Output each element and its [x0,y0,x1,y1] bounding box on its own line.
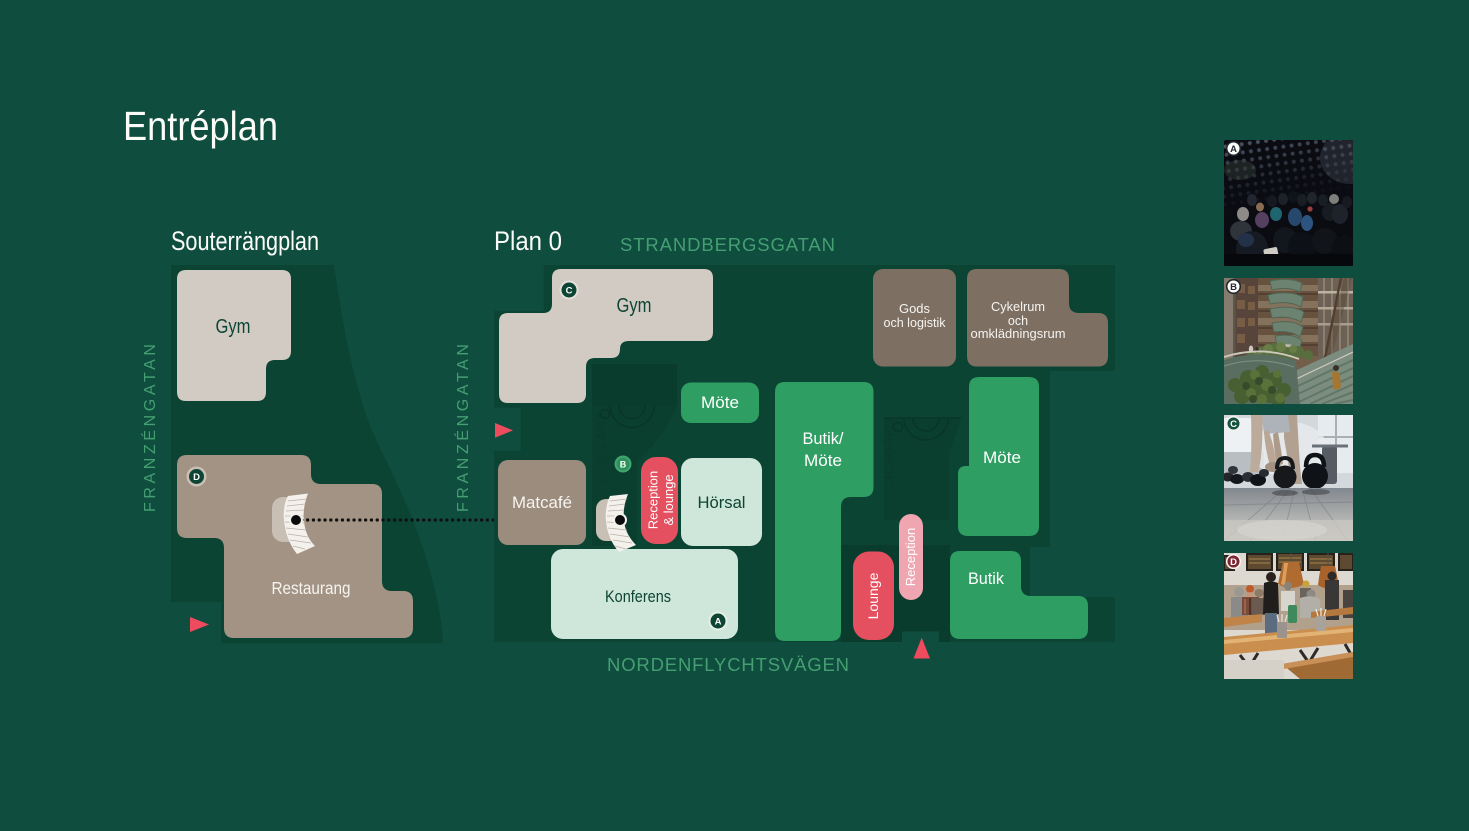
svg-text:Gym: Gym [216,316,251,338]
svg-text:B: B [620,460,627,470]
svg-text:Restaurang: Restaurang [272,578,351,598]
svg-text:och logistik: och logistik [884,316,947,330]
svg-text:D: D [1230,557,1237,568]
svg-text:Gods: Gods [899,302,930,316]
svg-text:Matcafé: Matcafé [512,493,572,512]
svg-text:A: A [715,617,722,628]
svg-text:B: B [1230,282,1237,293]
svg-text:Lounge: Lounge [865,572,881,619]
svg-text:C: C [566,286,573,297]
svg-text:LJUSGÅRD: LJUSGÅRD [596,410,609,494]
svg-text:LJUSGÅRD: LJUSGÅRD [883,419,896,489]
svg-text:Reception: Reception [903,528,918,587]
svg-text:Butik: Butik [968,570,1005,588]
svg-text:Butik/: Butik/ [803,429,844,448]
svg-text:NORDENFLYCHTSVÄGEN: NORDENFLYCHTSVÄGEN [607,654,849,675]
svg-text:C: C [1230,419,1237,430]
svg-text:Gym: Gym [617,295,652,317]
svg-text:Plan 0: Plan 0 [494,226,562,256]
svg-text:och: och [1008,314,1028,328]
svg-text:D: D [193,472,200,483]
svg-text:STRANDBERGSGATAN: STRANDBERGSGATAN [620,234,835,255]
svg-text:Reception: Reception [646,471,661,530]
svg-text:A: A [1230,144,1237,155]
svg-text:Hörsal: Hörsal [698,493,746,512]
svg-text:Möte: Möte [701,393,739,412]
svg-text:Konferens: Konferens [605,588,671,606]
svg-text:Entréplan: Entréplan [123,103,278,149]
svg-text:Souterrängplan: Souterrängplan [171,226,319,256]
svg-text:Möte: Möte [983,448,1021,467]
svg-text:omklädningsrum: omklädningsrum [971,327,1066,341]
svg-text:& lounge: & lounge [661,474,676,525]
svg-text:Möte: Möte [804,451,842,470]
svg-text:Cykelrum: Cykelrum [991,300,1045,314]
